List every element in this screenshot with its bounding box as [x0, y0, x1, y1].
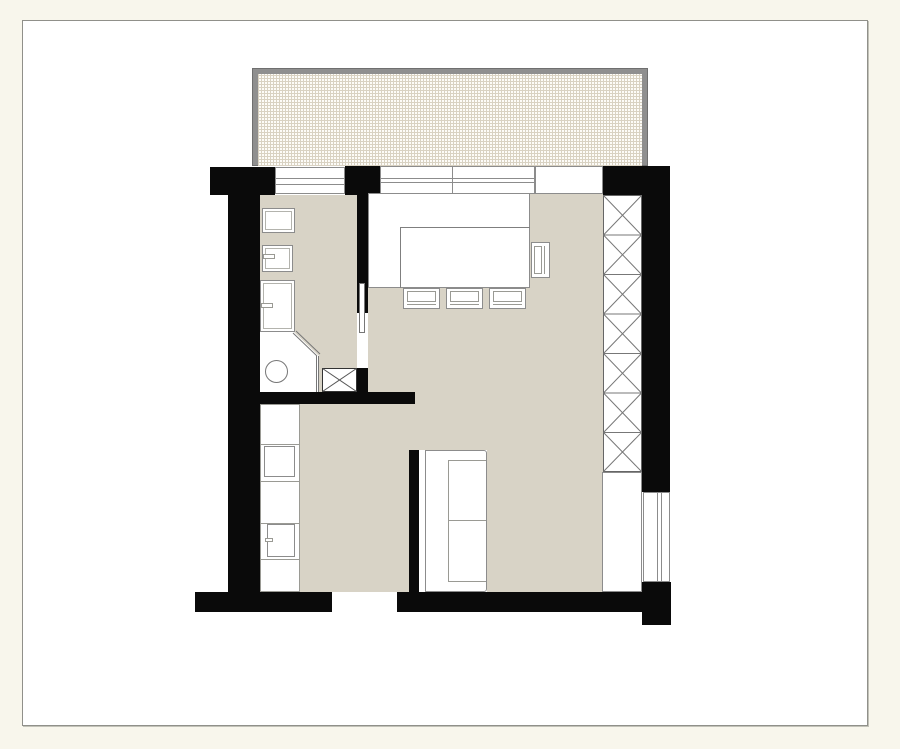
wall-top-middle-block	[345, 166, 380, 195]
partition-end-post	[316, 356, 319, 392]
wardrobe	[603, 195, 642, 472]
kitchen-counter	[368, 193, 530, 288]
sofa-armrest-line	[448, 460, 486, 461]
wall-sofa-stub	[409, 450, 419, 592]
wall-divider-stub	[357, 368, 368, 392]
window-kitchen	[380, 166, 535, 194]
low-cabinet	[602, 472, 642, 592]
lower-room-counter	[260, 404, 300, 592]
dining-table	[400, 227, 530, 288]
wall-right	[642, 166, 670, 492]
toilet	[265, 360, 288, 383]
shower-faucet-icon	[261, 303, 273, 308]
dining-chair-side	[531, 242, 550, 278]
wall-bottom-right-corner-block	[642, 582, 671, 625]
wall-bottom-left	[195, 592, 332, 612]
sink-faucet-icon	[263, 254, 275, 259]
dining-chair	[489, 288, 526, 309]
wall-top-left-pier	[210, 167, 275, 195]
sofa-backrest-line	[448, 460, 449, 582]
duct-shaft	[322, 368, 357, 392]
appliance-square	[264, 446, 295, 477]
balcony-floor-hatch	[258, 74, 642, 166]
sofa	[425, 450, 487, 592]
window-bathroom	[275, 167, 345, 194]
wall-left	[228, 195, 260, 612]
floor-plan-canvas	[0, 0, 900, 749]
wall-bottom-right	[397, 592, 643, 612]
sofa-armrest-line	[448, 581, 486, 582]
bath-cabinet	[262, 208, 295, 233]
dining-chair	[403, 288, 440, 309]
balcony-door-opening	[535, 166, 603, 194]
wall-horizontal-partition	[260, 392, 415, 404]
dining-chair	[446, 288, 483, 309]
pocket-door-leaf	[359, 283, 365, 333]
window-right-wall	[643, 492, 670, 582]
appliance-handle-icon	[265, 538, 273, 542]
sofa-cushion-divider	[448, 520, 486, 521]
